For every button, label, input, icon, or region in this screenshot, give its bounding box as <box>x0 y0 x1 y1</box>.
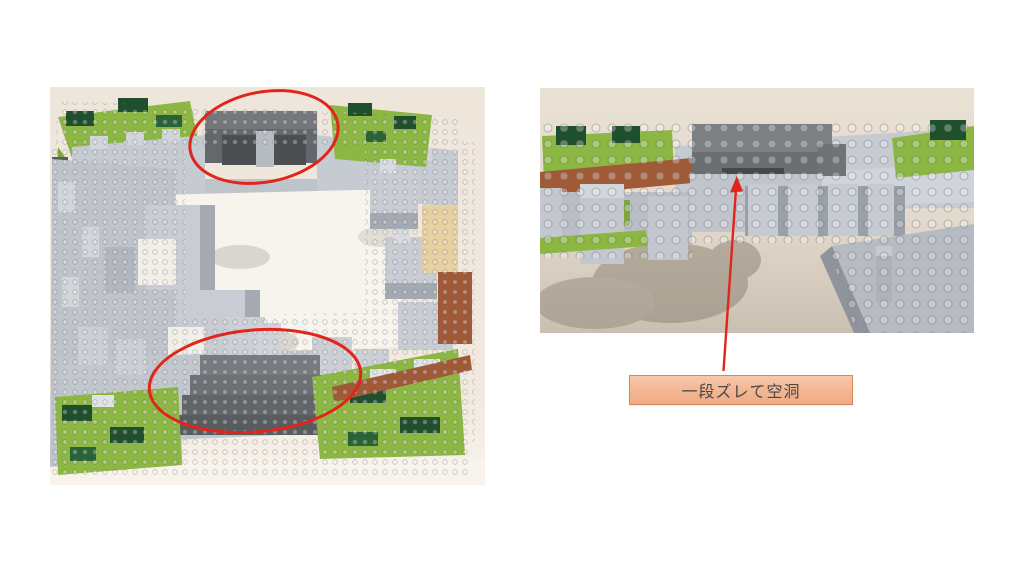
overview-photo-image <box>50 87 485 485</box>
closeup-photo-image <box>540 88 974 333</box>
slide-canvas: { "slide": { "background_color": "#fffff… <box>0 0 1024 576</box>
overview-photo <box>50 87 485 485</box>
callout-text: 一段ズレて空洞 <box>681 378 800 402</box>
closeup-photo <box>540 88 974 333</box>
callout-box: 一段ズレて空洞 <box>629 375 853 405</box>
